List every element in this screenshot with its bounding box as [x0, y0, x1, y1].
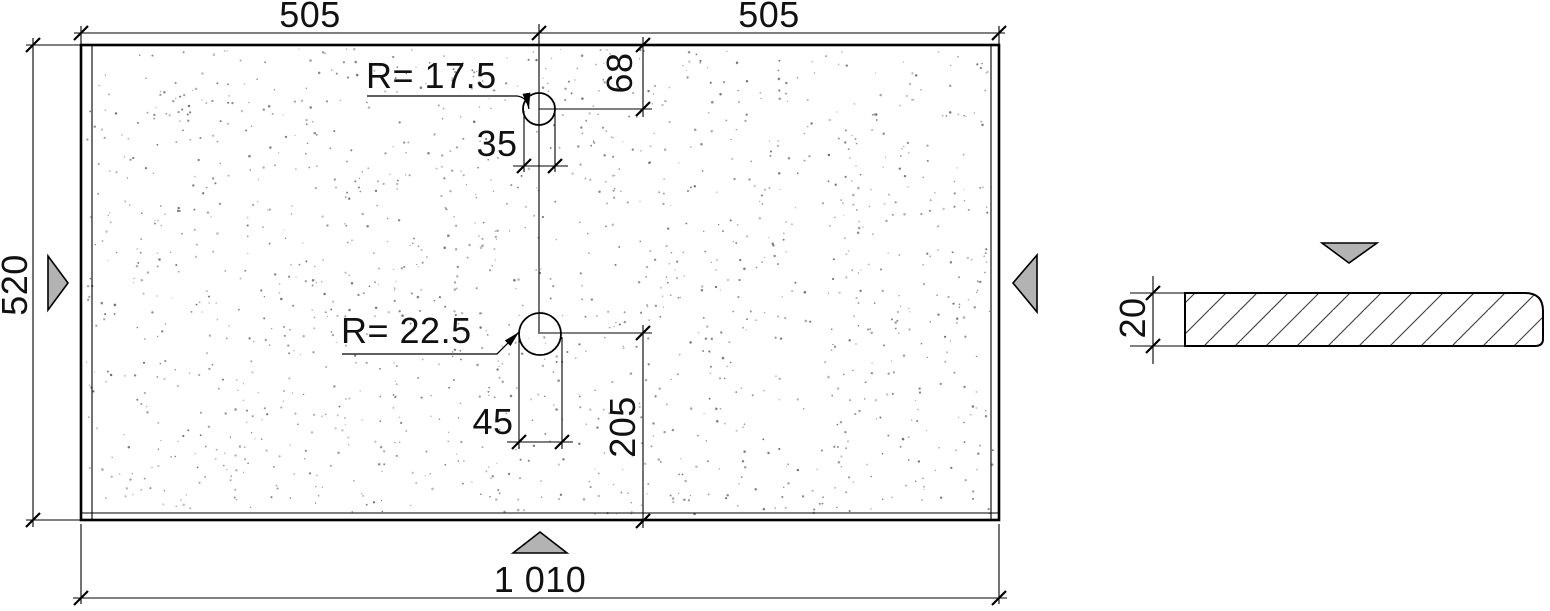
dim-ext-45 — [519, 337, 562, 449]
plate-edge-profile-lines — [81, 45, 999, 520]
view-arrow-right-icon — [48, 256, 68, 310]
dim-label-45: 45 — [472, 404, 513, 440]
view-arrow-up-icon — [513, 532, 567, 553]
drawing-linework — [0, 0, 1550, 611]
dim-label-20: 20 — [1115, 297, 1151, 338]
section-view — [1185, 293, 1543, 346]
section-outline-hatch — [1185, 293, 1543, 346]
dim-label-520: 520 — [0, 254, 33, 316]
dim-ext-top — [81, 26, 999, 45]
leader-r17-5 — [367, 96, 529, 109]
dim-label-35: 35 — [476, 126, 517, 162]
dim-label-505-left: 505 — [279, 0, 341, 33]
dimension-ticks — [26, 26, 1160, 605]
view-arrow-down-icon — [1322, 243, 1377, 263]
dim-label-505-right: 505 — [738, 0, 800, 33]
radius-label-r17-5: R= 17.5 — [366, 58, 497, 94]
plate-outline — [81, 45, 999, 520]
dim-label-68: 68 — [602, 52, 638, 93]
dim-label-205: 205 — [605, 396, 641, 458]
view-direction-markers — [48, 243, 1377, 553]
technical-drawing-canvas: 505 505 520 1 010 R= 17.5 68 35 R= 22.5 … — [0, 0, 1550, 611]
stipple-texture — [86, 48, 994, 515]
hole-middle-circle — [519, 313, 561, 355]
dim-label-1010: 1 010 — [494, 562, 587, 598]
radius-label-r22-5: R= 22.5 — [341, 313, 472, 349]
dimension-lines — [26, 26, 1185, 604]
view-arrow-left-icon — [1013, 255, 1037, 312]
